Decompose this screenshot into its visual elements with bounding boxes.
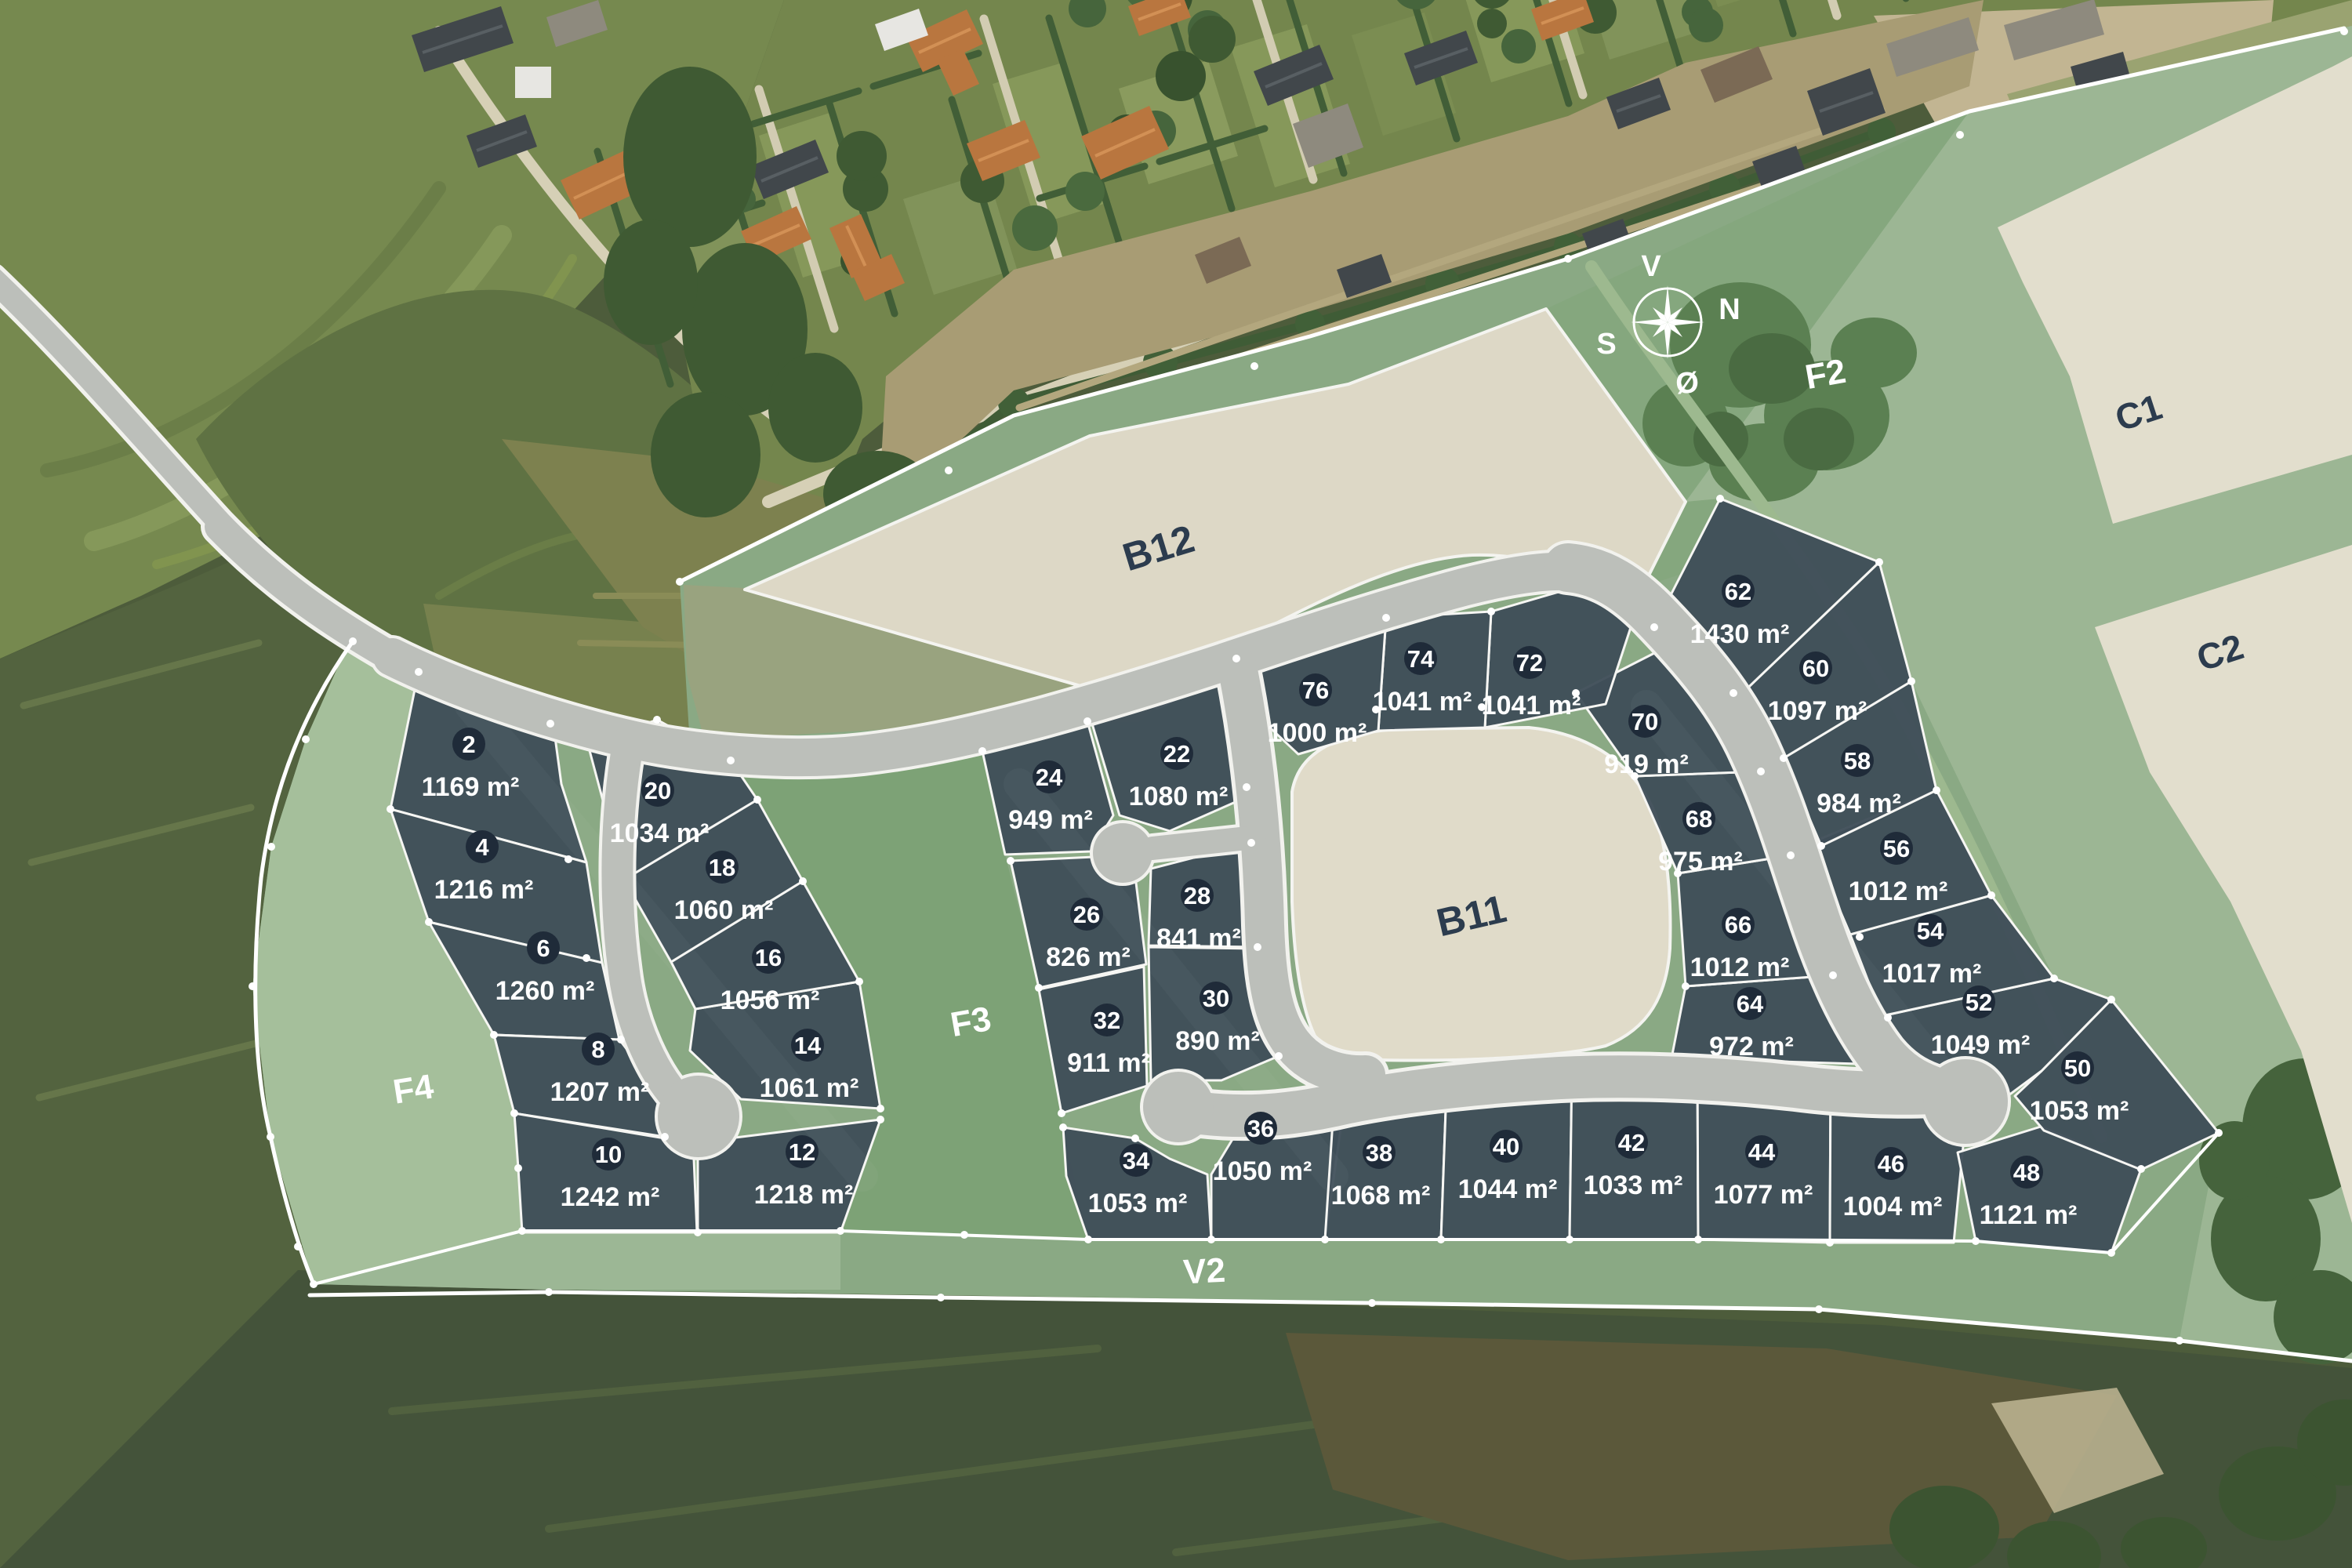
svg-text:22: 22 [1163, 740, 1190, 768]
svg-text:Ø: Ø [1675, 367, 1699, 400]
svg-text:N: N [1719, 293, 1740, 326]
svg-text:62: 62 [1725, 578, 1751, 605]
svg-text:66: 66 [1725, 911, 1751, 938]
svg-text:1041 m²: 1041 m² [1373, 687, 1472, 717]
svg-text:1012 m²: 1012 m² [1690, 953, 1790, 982]
svg-text:1053 m²: 1053 m² [2030, 1096, 2129, 1126]
svg-text:1000 m²: 1000 m² [1268, 718, 1367, 748]
svg-text:1056 m²: 1056 m² [720, 985, 820, 1015]
svg-text:44: 44 [1748, 1138, 1776, 1166]
svg-text:8: 8 [591, 1036, 604, 1063]
svg-text:2: 2 [462, 731, 475, 758]
svg-text:64: 64 [1737, 990, 1764, 1018]
svg-text:76: 76 [1302, 677, 1329, 704]
svg-text:56: 56 [1883, 835, 1910, 862]
svg-text:34: 34 [1123, 1147, 1150, 1174]
svg-text:984 m²: 984 m² [1817, 789, 1901, 818]
svg-text:1080 m²: 1080 m² [1129, 782, 1229, 811]
svg-text:1041 m²: 1041 m² [1482, 691, 1581, 720]
svg-text:14: 14 [794, 1032, 822, 1059]
svg-text:50: 50 [2064, 1054, 2091, 1082]
svg-text:40: 40 [1493, 1133, 1519, 1160]
svg-text:F4: F4 [390, 1067, 437, 1112]
svg-text:F2: F2 [1802, 352, 1849, 397]
svg-text:18: 18 [709, 854, 735, 881]
svg-text:1050 m²: 1050 m² [1213, 1156, 1312, 1186]
svg-text:1068 m²: 1068 m² [1331, 1181, 1431, 1210]
svg-text:58: 58 [1844, 747, 1871, 775]
svg-text:60: 60 [1802, 655, 1829, 682]
svg-text:28: 28 [1184, 882, 1210, 909]
svg-text:42: 42 [1618, 1129, 1645, 1156]
svg-text:32: 32 [1094, 1007, 1120, 1034]
svg-text:1207 m²: 1207 m² [550, 1077, 650, 1107]
svg-text:1121 m²: 1121 m² [1980, 1200, 2078, 1230]
svg-text:F3: F3 [948, 1000, 994, 1044]
svg-text:4: 4 [475, 833, 489, 861]
svg-text:S: S [1596, 328, 1616, 361]
svg-text:30: 30 [1203, 985, 1229, 1012]
svg-text:1049 m²: 1049 m² [1931, 1030, 2031, 1060]
svg-text:919 m²: 919 m² [1604, 750, 1689, 779]
svg-text:1012 m²: 1012 m² [1849, 877, 1948, 906]
svg-text:972 m²: 972 m² [1709, 1032, 1794, 1062]
svg-text:949 m²: 949 m² [1008, 805, 1093, 835]
svg-text:1430 m²: 1430 m² [1690, 619, 1790, 649]
svg-text:20: 20 [644, 777, 671, 804]
svg-text:10: 10 [595, 1141, 622, 1168]
svg-text:68: 68 [1686, 805, 1712, 833]
svg-text:36: 36 [1247, 1115, 1274, 1142]
svg-text:70: 70 [1632, 708, 1658, 735]
svg-text:1017 m²: 1017 m² [1882, 959, 1982, 989]
svg-text:1218 m²: 1218 m² [754, 1180, 854, 1210]
svg-text:1004 m²: 1004 m² [1843, 1192, 1943, 1221]
svg-text:46: 46 [1878, 1150, 1904, 1178]
svg-text:V2: V2 [1182, 1251, 1226, 1292]
svg-text:52: 52 [1965, 989, 1992, 1016]
svg-text:826 m²: 826 m² [1046, 942, 1131, 972]
svg-text:1044 m²: 1044 m² [1458, 1174, 1558, 1204]
svg-text:1260 m²: 1260 m² [495, 976, 595, 1006]
svg-text:1060 m²: 1060 m² [674, 895, 774, 925]
svg-text:1242 m²: 1242 m² [561, 1182, 660, 1212]
svg-text:12: 12 [789, 1138, 815, 1166]
svg-text:1216 m²: 1216 m² [434, 875, 534, 905]
svg-text:1053 m²: 1053 m² [1088, 1189, 1188, 1218]
svg-text:911 m²: 911 m² [1067, 1048, 1150, 1078]
svg-text:1061 m²: 1061 m² [760, 1073, 859, 1103]
svg-text:38: 38 [1366, 1139, 1392, 1167]
svg-text:1034 m²: 1034 m² [610, 818, 710, 848]
svg-text:1097 m²: 1097 m² [1768, 696, 1867, 726]
svg-text:6: 6 [536, 935, 550, 962]
svg-text:890 m²: 890 m² [1175, 1026, 1260, 1056]
svg-text:72: 72 [1516, 649, 1543, 677]
svg-text:16: 16 [755, 944, 782, 971]
svg-text:48: 48 [2013, 1159, 2040, 1186]
svg-text:54: 54 [1917, 917, 1944, 945]
svg-text:26: 26 [1073, 901, 1100, 928]
svg-text:74: 74 [1407, 645, 1435, 673]
svg-text:1033 m²: 1033 m² [1584, 1171, 1683, 1200]
svg-text:1077 m²: 1077 m² [1714, 1180, 1813, 1210]
svg-text:975 m²: 975 m² [1658, 847, 1743, 877]
svg-text:V: V [1641, 250, 1661, 283]
svg-text:24: 24 [1036, 764, 1063, 791]
svg-text:1169 m²: 1169 m² [422, 772, 520, 802]
svg-text:841 m²: 841 m² [1156, 924, 1241, 953]
